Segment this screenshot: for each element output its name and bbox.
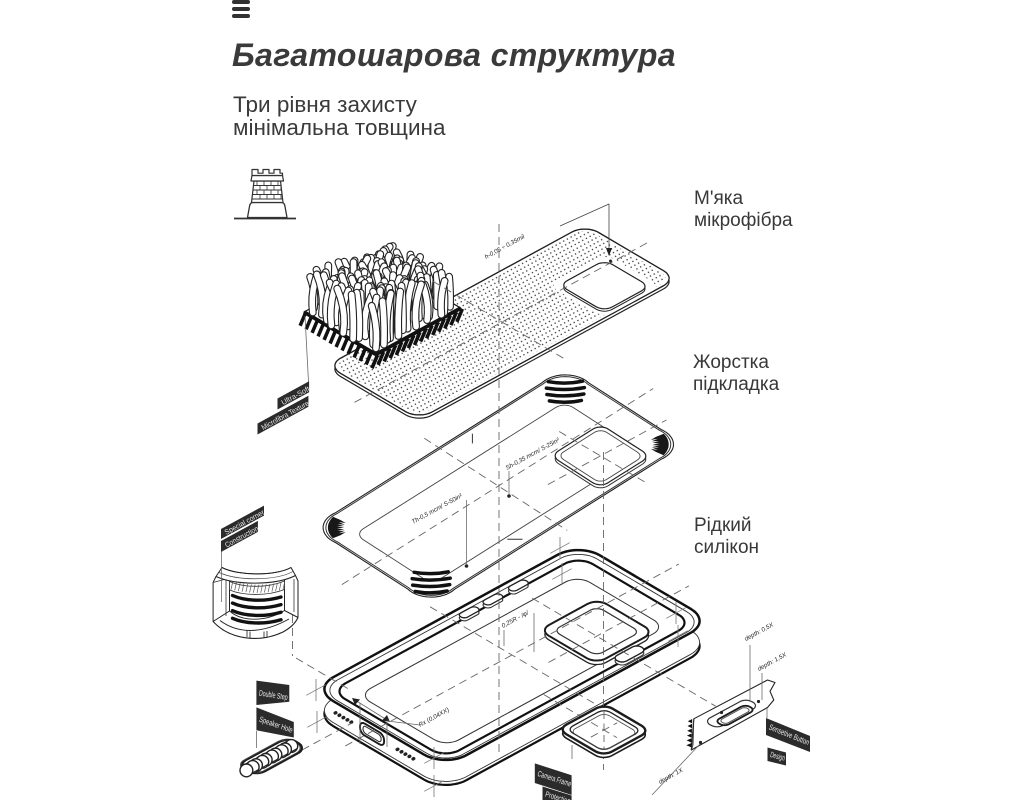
svg-text:depth: 1X: depth: 1X bbox=[658, 767, 685, 786]
svg-text:depth: 0,5X: depth: 0,5X bbox=[744, 621, 776, 643]
svg-text:depth: 1,5X: depth: 1,5X bbox=[757, 651, 789, 673]
svg-text:h-0,05 ÷ 0,35mil: h-0,05 ÷ 0,35mil bbox=[484, 233, 527, 261]
